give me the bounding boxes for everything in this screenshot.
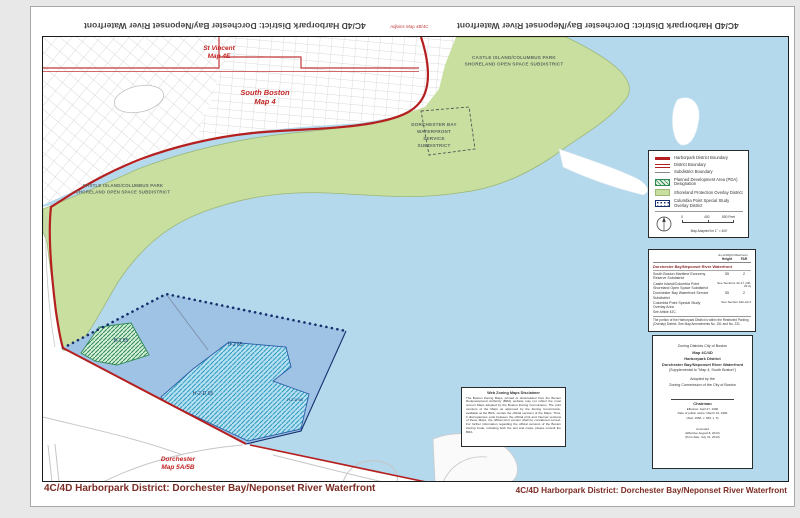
scale-caption: Map Adapted for 1" = 400' bbox=[680, 229, 738, 233]
legend-item: Columbia Point Special Study Overlay Dis… bbox=[655, 199, 743, 208]
footer-title-left: 4C/4D Harborpark District: Dorchester Ba… bbox=[44, 483, 375, 494]
title-block-line: Dorchester Bay/Neponset River Waterfront bbox=[659, 362, 746, 368]
label-castle-island-top-2: SHORELAND OPEN SPACE SUBDISTRICT bbox=[465, 62, 564, 67]
table-see-article: See Article 42C. bbox=[653, 310, 751, 314]
table-note: The portion of the Harborpark District i… bbox=[653, 316, 751, 326]
label-dorchester-bay-2: WATERFRONT bbox=[417, 129, 451, 134]
compass-and-scale: 0 400 800 Feet Map Adapted for 1" = 400' bbox=[655, 211, 743, 233]
label-st-vincent: St Vincent bbox=[203, 45, 235, 52]
title-block-line: (Supplemental to "Map 4, South Boston") bbox=[659, 368, 746, 374]
label-zone-h2d: H-2-D 65 bbox=[193, 391, 214, 397]
title-block-line: (Print date: July 31, 2013) bbox=[659, 435, 746, 439]
label-castle-island-left-2: SHORELAND OPEN SPACE SUBDISTRICT bbox=[76, 190, 171, 195]
label-st-vincent-map: Map 4E bbox=[208, 53, 231, 60]
study-area-swatch bbox=[655, 200, 670, 207]
label-dorchester-map-1: Dorchester bbox=[161, 456, 196, 463]
label-south-boston-map: Map 4 bbox=[254, 97, 276, 106]
label-dorchester-bay-3: SERVICE bbox=[423, 136, 444, 141]
disclaimer-box: Web Zoning Maps Disclaimer The Boston Zo… bbox=[461, 387, 566, 447]
label-zone-h2d-small: H-2-D 65 bbox=[287, 398, 302, 402]
title-block-line: Zoning Commission of the City of Boston bbox=[659, 383, 746, 389]
disclaimer-body: The Boston Zoning Maps, printed or downl… bbox=[466, 397, 561, 435]
signature-line bbox=[671, 399, 734, 400]
disclaimer-title: Web Zoning Maps Disclaimer bbox=[466, 391, 561, 395]
table-title: Dorchester Bay/Neponset River Waterfront bbox=[653, 264, 751, 271]
col-far: FAR bbox=[737, 257, 751, 261]
table-row: Columbia Point Special Study Overlay Are… bbox=[653, 301, 751, 309]
legend-item: Harborpark District Boundary bbox=[655, 156, 743, 161]
label-dorchester-map-2: Map 5A/5B bbox=[161, 464, 195, 471]
harborpark-boundary-swatch bbox=[655, 157, 670, 160]
legend-item: Shoreland Protection Overlay District bbox=[655, 189, 743, 196]
label-south-boston: South Boston bbox=[240, 88, 290, 97]
subdistrict-boundary-swatch bbox=[655, 172, 670, 173]
dimensional-table-box: As-of-Right Maximum Height FAR Dorcheste… bbox=[648, 249, 756, 332]
district-boundary-swatch bbox=[655, 164, 670, 168]
label-zone-b1: B-1 55 bbox=[114, 338, 129, 344]
table-row: Dorchester Bay Waterfront Service Subdis… bbox=[653, 291, 751, 299]
col-height: Height bbox=[717, 257, 737, 261]
label-dorchester-bay-4: SUBDISTRICT bbox=[417, 143, 450, 148]
title-block: Zoning Districts City of Boston Map 4C/4… bbox=[652, 335, 753, 469]
title-block-line: (Stat. 1956, c. 665, s. 5) bbox=[659, 416, 746, 420]
shoreland-swatch bbox=[655, 189, 670, 196]
label-zone-h2: H-2 65 bbox=[227, 342, 242, 348]
legend-item: Subdistrict Boundary bbox=[655, 170, 743, 175]
top-title-right: 4C/4D Harborpark District: Dorchester Ba… bbox=[457, 21, 739, 31]
label-castle-island-top-1: CASTLE ISLAND/COLUMBUS PARK bbox=[472, 55, 556, 60]
scale-bar: 0 400 800 Feet bbox=[680, 215, 738, 228]
legend-item: Planned Development Area (PDA) Designati… bbox=[655, 178, 743, 187]
label-castle-island-left-1: CASTLE ISLAND/COLUMBUS PARK bbox=[83, 183, 164, 188]
footer-title-right: 4C/4D Harborpark District: Dorchester Ba… bbox=[516, 486, 787, 495]
table-row: Castle Island/Columbia Point Shoreland O… bbox=[653, 282, 751, 290]
top-title-left: 4C/4D Harborpark District: Dorchester Ba… bbox=[84, 21, 366, 31]
pda-swatch bbox=[655, 179, 670, 186]
zoning-map-sheet-view: 4C/4D Harborpark District: Dorchester Ba… bbox=[0, 0, 800, 518]
legend-item: District Boundary bbox=[655, 163, 743, 168]
compass-icon bbox=[655, 215, 673, 233]
legend-box: Harborpark District Boundary District Bo… bbox=[648, 150, 749, 238]
table-row: South Boston Maritime Economy Reserve Su… bbox=[653, 272, 751, 280]
adjoins-map-note: Adjoins Map 4B/4C bbox=[390, 24, 429, 29]
label-dorchester-bay-1: DORCHESTER BAY bbox=[411, 122, 457, 127]
